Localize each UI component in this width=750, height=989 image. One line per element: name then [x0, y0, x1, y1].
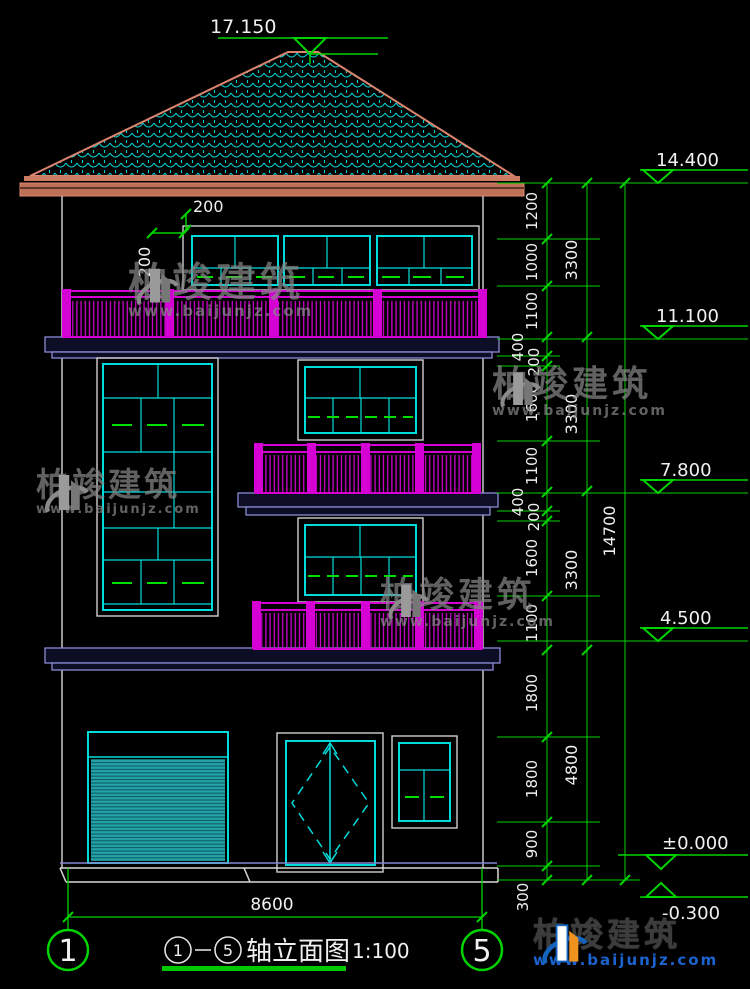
floor-cornice-11100 — [45, 337, 499, 358]
svg-text:1100: 1100 — [523, 292, 541, 330]
svg-text:3300: 3300 — [562, 240, 581, 281]
elevation-canvas: 17.150 — [0, 0, 750, 989]
svg-text:4.500: 4.500 — [660, 608, 712, 629]
svg-text:7.800: 7.800 — [660, 460, 712, 481]
balcony-slab-7800 — [238, 493, 498, 515]
title-axis-end: 5 — [223, 941, 233, 960]
svg-text:3300: 3300 — [562, 550, 581, 591]
svg-text:11.100: 11.100 — [656, 306, 719, 327]
detail-dim-value: 200 — [135, 247, 154, 278]
axis-number: 5 — [472, 934, 491, 969]
width-value: 8600 — [250, 895, 293, 915]
svg-text:1200: 1200 — [523, 192, 541, 230]
level-value: 17.150 — [210, 16, 276, 38]
detail-dim-value: 200 — [193, 197, 224, 216]
floor-cornice-4500 — [45, 648, 500, 670]
svg-text:±0.000: ±0.000 — [662, 833, 729, 854]
svg-text:1000: 1000 — [523, 243, 541, 281]
svg-text:1100: 1100 — [523, 447, 541, 485]
fourth-floor-railing — [62, 289, 487, 337]
svg-text:900: 900 — [523, 830, 541, 859]
title-axis-start: 1 — [173, 941, 183, 960]
svg-text:1800: 1800 — [523, 760, 541, 798]
svg-text:1600: 1600 — [523, 384, 541, 422]
svg-text:4800: 4800 — [562, 745, 581, 786]
cad-elevation-drawing: 17.150 — [0, 0, 750, 989]
svg-text:14.400: 14.400 — [656, 150, 719, 171]
axis-number: 1 — [58, 934, 77, 969]
svg-text:1600: 1600 — [523, 539, 541, 577]
title-scale: 1:100 — [352, 939, 410, 963]
svg-text:1800: 1800 — [523, 674, 541, 712]
svg-text:-0.300: -0.300 — [662, 903, 720, 924]
svg-text:1100: 1100 — [523, 604, 541, 642]
svg-text:300: 300 — [514, 883, 532, 912]
svg-text:200: 200 — [525, 503, 543, 532]
title-name: 轴立面图 — [246, 937, 350, 967]
svg-text:200: 200 — [525, 348, 543, 377]
title-underline — [162, 966, 346, 971]
total-height-label: 14700 — [600, 506, 619, 557]
svg-text:3300: 3300 — [562, 394, 581, 435]
